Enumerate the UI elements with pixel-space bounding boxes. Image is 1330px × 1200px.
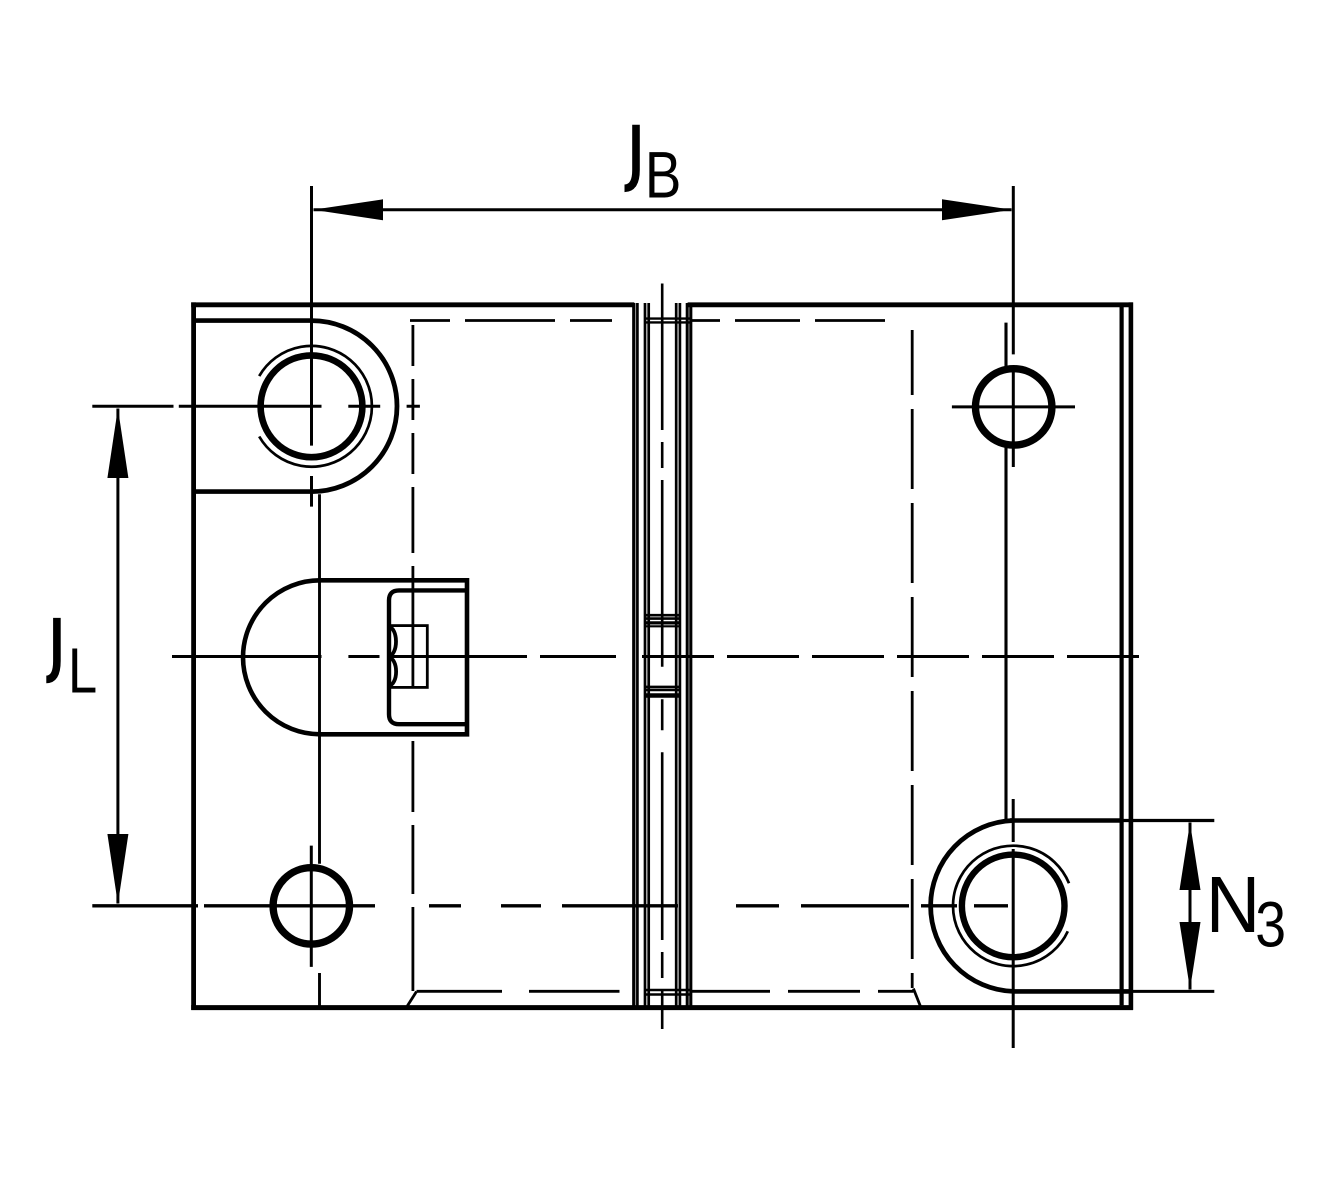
svg-text:N: N <box>1206 861 1261 949</box>
svg-text:L: L <box>68 636 97 707</box>
svg-text:3: 3 <box>1255 889 1286 961</box>
svg-text:B: B <box>645 138 681 212</box>
